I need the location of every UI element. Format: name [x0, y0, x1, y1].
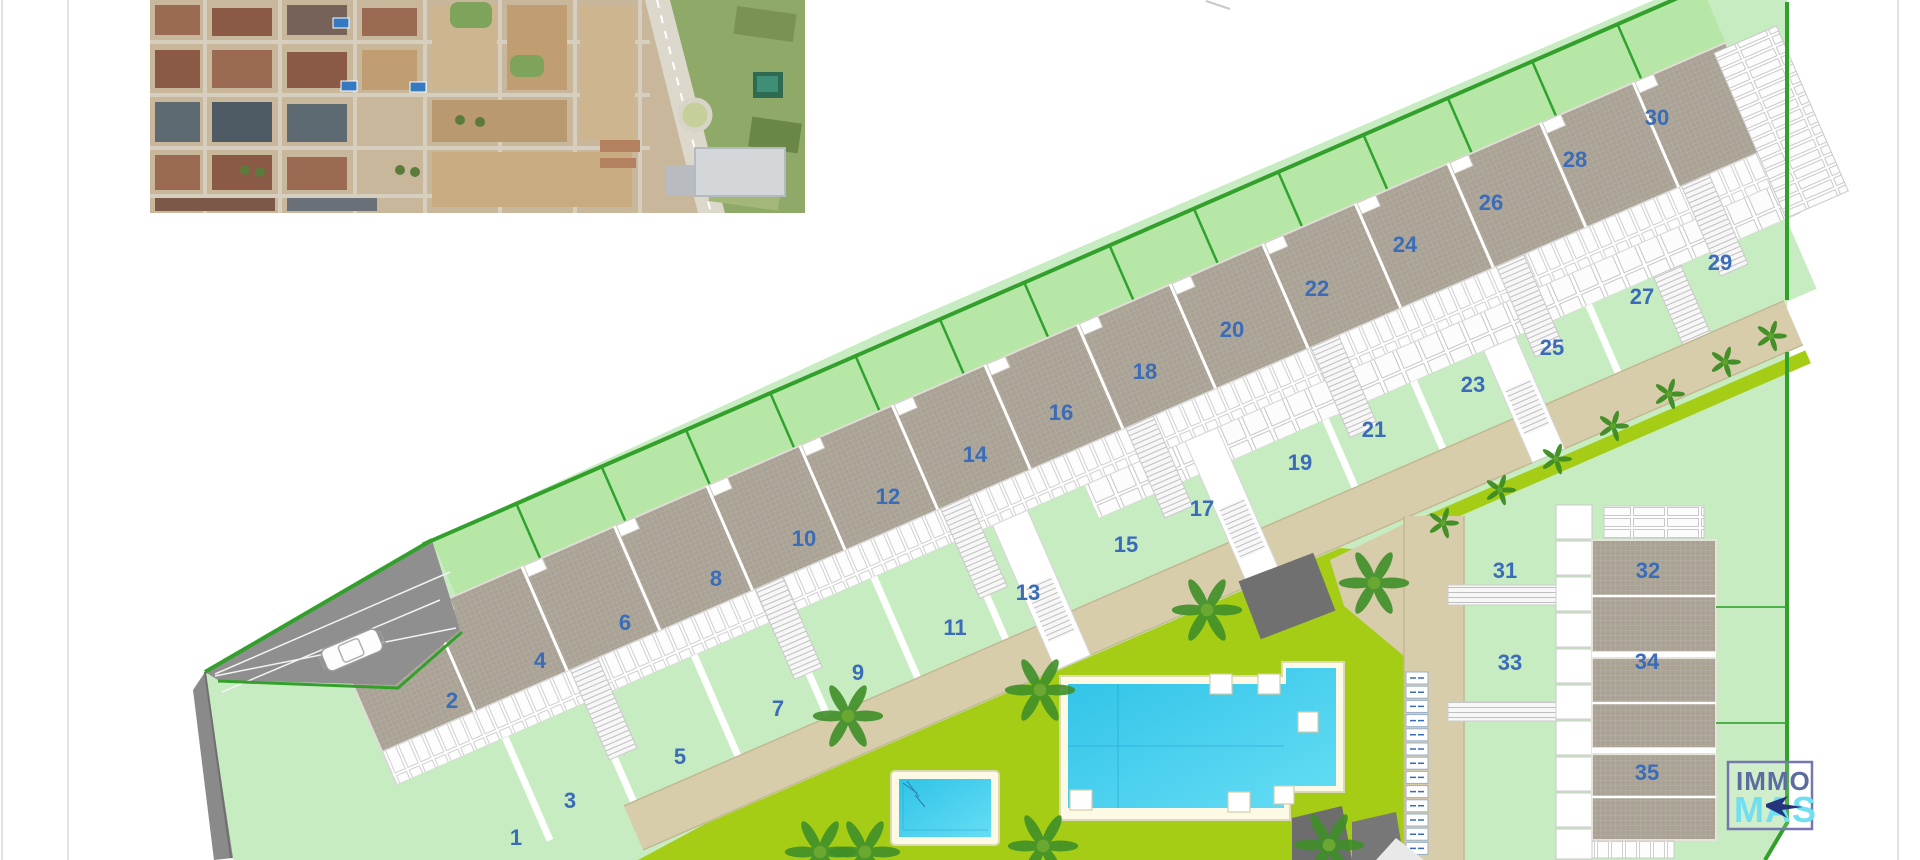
- bike-stall: [1406, 743, 1428, 755]
- bike-stall: [1406, 715, 1428, 727]
- plot-label-24: 24: [1393, 232, 1418, 257]
- plot-label-11: 11: [943, 615, 966, 640]
- plot-label-15: 15: [1114, 532, 1138, 557]
- bike-stall: [1406, 686, 1428, 698]
- plot-label-1: 1: [510, 825, 522, 850]
- brand-logo: IMMO MAS: [1728, 762, 1817, 830]
- bike-stall: [1406, 814, 1428, 826]
- plot-label-5: 5: [674, 744, 686, 769]
- plot-label-19: 19: [1288, 450, 1312, 475]
- plot-label-10: 10: [792, 526, 816, 551]
- plot-label-17: 17: [1190, 496, 1214, 521]
- plot-label-4: 4: [534, 648, 547, 673]
- site-plan-page: 1234567891011121314151617181920212223242…: [0, 0, 1920, 860]
- plot-label-22: 22: [1305, 276, 1329, 301]
- plot-label-8: 8: [710, 566, 722, 591]
- plot-label-25: 25: [1540, 335, 1564, 360]
- plot-label-21: 21: [1362, 417, 1386, 442]
- plot-label-9: 9: [852, 660, 864, 685]
- plot-label-3: 3: [564, 788, 576, 813]
- bike-stall: [1406, 672, 1428, 684]
- aerial-photo-inset: [150, 0, 805, 213]
- bike-stall: [1406, 828, 1428, 840]
- plot-label-33: 33: [1498, 650, 1522, 675]
- bike-stall: [1406, 700, 1428, 712]
- plot-label-12: 12: [876, 484, 900, 509]
- plot-label-2: 2: [446, 688, 458, 713]
- plot-label-7: 7: [772, 696, 784, 721]
- plot-label-23: 23: [1461, 372, 1485, 397]
- plot-label-29: 29: [1708, 250, 1732, 275]
- plot-label-14: 14: [963, 442, 988, 467]
- plot-label-27: 27: [1630, 284, 1654, 309]
- plot-label-26: 26: [1479, 190, 1503, 215]
- plot-label-32: 32: [1636, 558, 1660, 583]
- plot-label-6: 6: [619, 610, 631, 635]
- plot-label-13: 13: [1016, 580, 1040, 605]
- plot-label-34: 34: [1635, 649, 1660, 674]
- bike-stall: [1406, 729, 1428, 741]
- site-plan-graphic: 1234567891011121314151617181920212223242…: [0, 0, 1920, 860]
- bike-stall: [1406, 757, 1428, 769]
- bike-stall: [1406, 771, 1428, 783]
- plot-label-16: 16: [1049, 400, 1073, 425]
- plot-label-28: 28: [1563, 147, 1587, 172]
- bike-stall: [1406, 786, 1428, 798]
- plot-label-30: 30: [1645, 105, 1669, 130]
- bike-stall: [1406, 800, 1428, 812]
- kids-pool: [891, 771, 999, 845]
- plot-label-18: 18: [1133, 359, 1157, 384]
- plot-label-31: 31: [1493, 558, 1517, 583]
- right-block-stairs: [1556, 505, 1592, 859]
- plot-label-35: 35: [1635, 760, 1659, 785]
- plot-label-20: 20: [1220, 317, 1244, 342]
